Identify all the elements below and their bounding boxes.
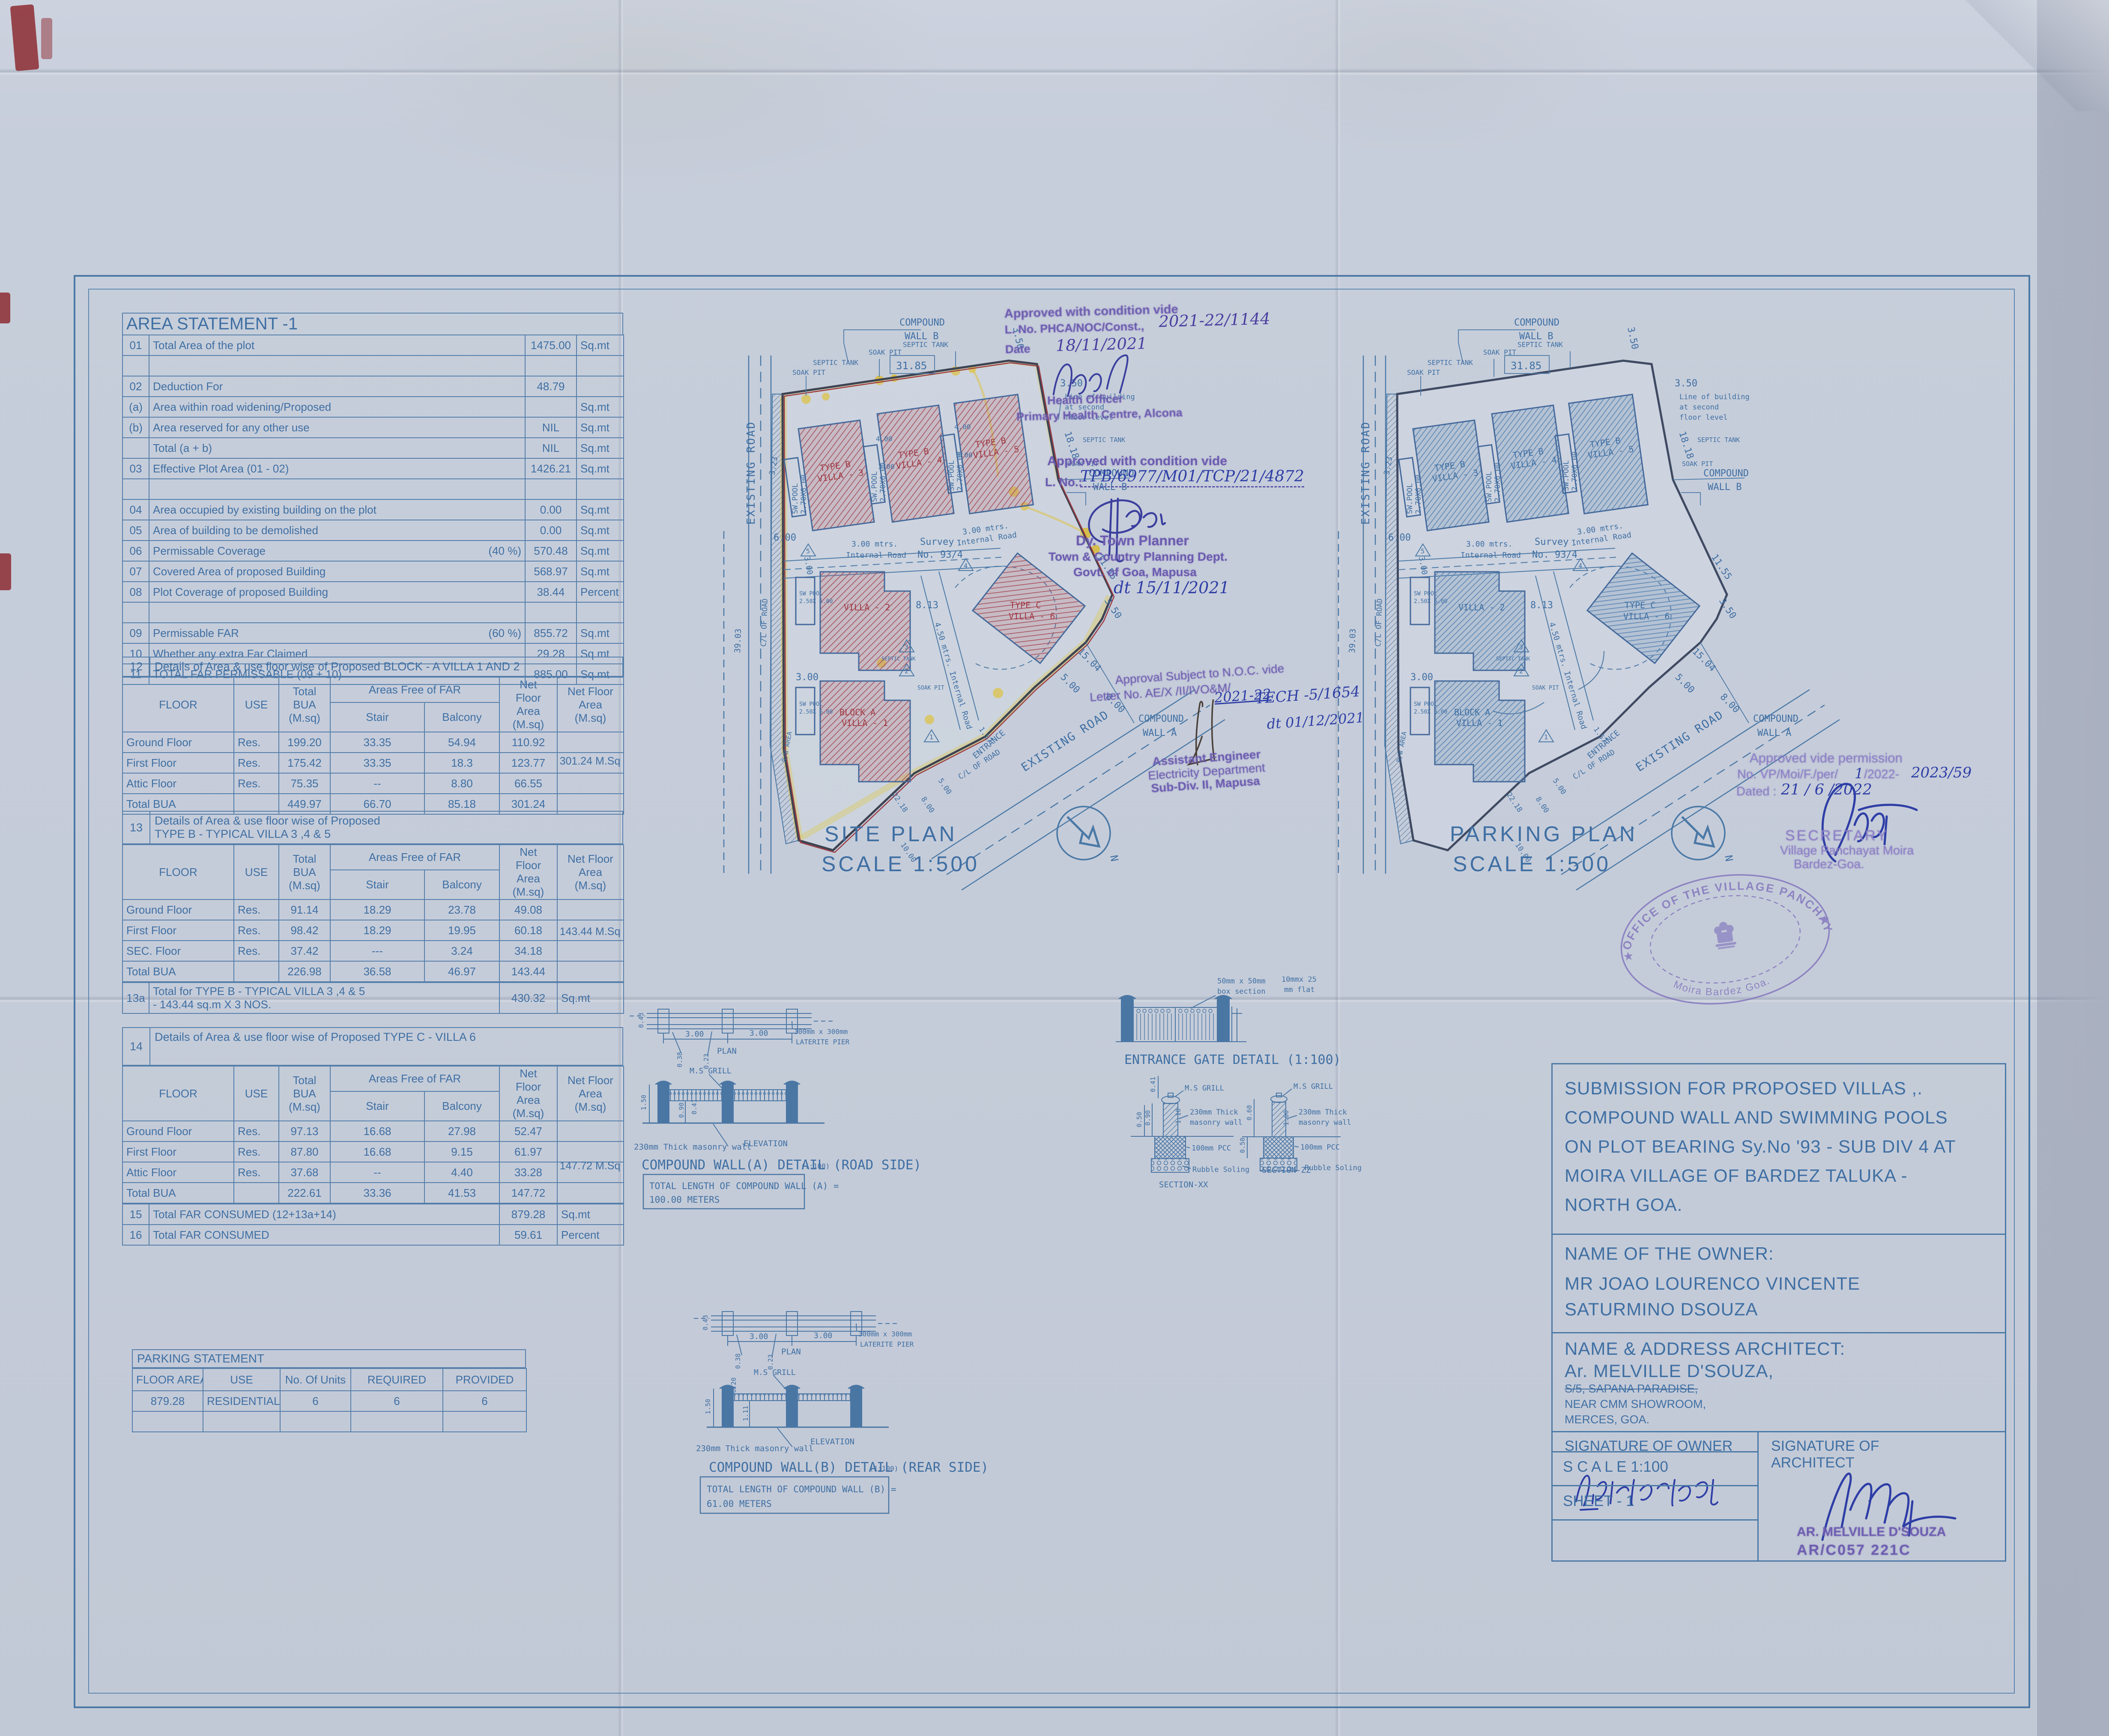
table-row: (a)Area within road widening/ProposedSq.… [122,397,624,417]
cell-balcony: 18.3 [424,753,499,773]
svg-text:2: 2 [1519,667,1523,675]
svg-text:ELEVATION: ELEVATION [744,1139,788,1148]
table-row: 04Area occupied by existing building on … [122,499,624,520]
block14-body: Ground FloorRes.97.1316.6827.9852.47Firs… [122,1121,624,1203]
col-stair: Stair [330,870,424,899]
cell-stair: 33.35 [330,732,424,753]
stamp-line: Primary Health Centre, Alcona [1016,406,1183,424]
svg-text:SOAK PIT: SOAK PIT [917,685,944,691]
col-nfa: Net Floor Area (M.sq) [557,677,624,732]
stamp-line: Approved with condition vide [1004,302,1178,321]
scanned-blueprint-page: AREA STATEMENT -1 01Total Area of the pl… [0,0,2109,1736]
svg-text:floor level: floor level [1679,413,1728,422]
health-officer-stamp: Approved with condition vide L. No. PHCA… [1004,295,1359,433]
cell-pct [461,561,525,582]
cell-floor: Ground Floor [122,1121,234,1141]
area-statement: AREA STATEMENT -1 01Total Area of the pl… [122,313,623,685]
cell-no [122,356,149,376]
cell-value: 879.28 [499,1204,557,1225]
cell-no: 05 [122,520,149,541]
svg-text:COMPOUND WALL(B) DETAIL (REAR: COMPOUND WALL(B) DETAIL (REAR SIDE) [709,1460,989,1475]
svg-text:SOAK PIT: SOAK PIT [792,368,825,376]
cell-balcony: 4.40 [424,1162,499,1183]
svg-text:5: 5 [1421,547,1425,555]
svg-text:0.23: 0.23 [767,1354,774,1370]
cell-unit [577,479,624,499]
svg-text:0.90: 0.90 [1144,1110,1152,1126]
svg-text:SW.POOL: SW.POOL [1485,471,1494,502]
divider [1553,1519,1757,1521]
cell-label: Plot Coverage of proposed Building [149,582,461,602]
col-bua: Total BUA (M.sq) [279,845,330,899]
cell-bua: 87.80 [279,1141,330,1162]
table-row [132,1411,526,1432]
block12-title: Details of Area & use floor wise of Prop… [150,657,524,676]
svg-text:1: 1 [929,733,933,741]
submission-line: SUBMISSION FOR PROPOSED VILLAS ,. [1565,1074,1956,1103]
table-row: 15Total FAR CONSUMED (12+13a+14)879.28Sq… [122,1204,624,1225]
cell-bua: 37.42 [279,941,330,961]
table-row: 09Permissable FAR(60 %)855.72Sq.mt [122,623,624,643]
table-row: Total BUA222.6133.3641.53147.72 [122,1183,624,1203]
cell-net: 49.08 [499,899,557,920]
parking-plan-scale: SCALE 1:500 [1453,852,1611,876]
cell-unit: Sq.mt [557,1204,624,1225]
block12-no: 12 [123,657,150,676]
cell-unit: Sq.mt [577,438,624,458]
cell-nfa [557,961,624,982]
cell-unit: Sq.mt [577,623,624,643]
table-row: 05Area of building to be demolished0.00S… [122,520,624,541]
table-row: Ground FloorRes.199.2033.3554.94110.92 [122,732,624,753]
cell-no: 03 [122,458,149,479]
stamp-line: Health Officer [1047,392,1123,408]
svg-text:31.85: 31.85 [896,360,927,372]
svg-text:5.00: 5.00 [1058,672,1082,696]
svg-text:M.S GRILL: M.S GRILL [1293,1082,1333,1091]
svg-text:2.70X6.00: 2.70X6.00 [1494,463,1502,502]
table-row: 01Total Area of the plot1475.00Sq.mt [122,335,624,356]
north-arrow-icon: N [1057,807,1120,862]
cell-value [525,356,577,376]
cell-floor: First Floor [122,920,234,941]
cell-bua: 37.68 [279,1162,330,1183]
cell-label: Deduction For [149,376,461,397]
cell-balcony: 23.78 [424,899,499,920]
table-row: Ground FloorRes.91.1418.2923.7849.08 [122,899,624,920]
entrance-gate-detail: 50mm x 50mm box section 10mmx 25 mm flat… [1116,977,1341,1067]
table-row: Total BUA226.9836.5846.97143.44 [122,961,624,982]
svg-text:22.18: 22.18 [1505,791,1524,814]
cell-nfa [557,1141,624,1162]
cell-net: 33.28 [499,1162,557,1183]
svg-text:2.70X6.00: 2.70X6.00 [1571,451,1579,491]
table-row: Attic FloorRes.75.35--8.8066.55 [122,773,624,794]
cell-nfa [557,773,624,794]
svg-text:LATERITE PIER: LATERITE PIER [860,1340,914,1348]
svg-text:3.50: 3.50 [1675,378,1697,389]
cell-unit [577,356,624,376]
parking-plan-title: PARKING PLAN [1450,822,1637,846]
divider [1553,1332,2005,1333]
cell-label: Effective Plot Area (01 - 02) [149,458,461,479]
compound-wall-a-detail: 3.00 3.00 0.43 0.38 0.23 PLAN 300mm x 30… [630,1009,921,1209]
svg-text:SW POOL: SW POOL [799,701,823,708]
svg-text:2.50X 6.00: 2.50X 6.00 [799,598,833,605]
round-office-stamp: OFFICE OF THE VILLAGE PANCHAYAT Moira Ba… [1615,869,1837,1010]
svg-text:SEPTIC TANK: SEPTIC TANK [903,341,948,349]
svg-text:0.43: 0.43 [637,1013,645,1028]
svg-text:1.50: 1.50 [704,1399,712,1414]
svg-text:TYPE C: TYPE C [1625,600,1655,610]
cell-value: 48.79 [525,376,577,397]
col-nfa: Net Floor Area (M.sq) [557,845,624,899]
col-required: REQUIRED [351,1368,443,1391]
stamp-line: Dy. Town Planner [1076,533,1189,549]
table-row: Attic FloorRes.37.68--4.4033.28 [122,1162,624,1183]
cell-unit: Sq.mt [577,335,624,356]
cell-pct [461,356,525,376]
cell-no [122,438,149,458]
row13a-no: 13a [122,983,149,1013]
col-balcony: Balcony [424,1091,499,1121]
svg-text:M.S GRILL: M.S GRILL [754,1368,796,1377]
stamp-line: Govt. of Goa, Mapusa [1073,565,1197,579]
cell-unit: Sq.mt [577,541,624,561]
svg-text:TOTAL LENGTH OF COMPOUND WALL: TOTAL LENGTH OF COMPOUND WALL (A) = [649,1181,839,1191]
electricity-dept-stamp: Approval Subject to N.O.C. vide Letter N… [1088,650,1430,802]
star-icon: ★ [1622,949,1634,963]
cell-balcony: 41.53 [424,1183,499,1203]
svg-text:mm flat: mm flat [1284,986,1315,994]
cell-use: Res. [234,941,279,961]
cell-pct [461,458,525,479]
svg-text:1.11: 1.11 [742,1406,750,1421]
cell-label: Total FAR CONSUMED (12+13a+14) [149,1204,499,1225]
cell-pct [461,520,525,541]
block13a-table: 13a Total for TYPE B - TYPICAL VILLA 3 ,… [122,982,624,1014]
col-free: Areas Free of FAR [330,1066,499,1091]
svg-text:SW.POOL: SW.POOL [870,471,879,502]
section-xx-detail: 0.41 0.50 0.90 1.10 M.S GRILL 230mm Thic… [1131,1076,1249,1189]
cell-value: NIL [525,438,577,458]
col-use: USE [234,1066,279,1121]
col-nfa: Net Floor Area (M.sq) [557,1066,624,1121]
cell-net: 143.44 [499,961,557,982]
cell-use: Res. [234,920,279,941]
cell-stair: -- [330,773,424,794]
svg-text:M.S GRILL: M.S GRILL [690,1067,732,1076]
table-row: SEC. FloorRes.37.42---3.2434.18 [122,941,624,961]
cell-label: Area reserved for any other use [149,417,461,438]
cell-units [280,1411,351,1432]
cell-label [149,356,461,376]
cell-value: 59.61 [499,1225,557,1245]
block12-header: 12 Details of Area & use floor wise of P… [122,657,623,677]
svg-text:100.00 METERS: 100.00 METERS [649,1195,720,1205]
table-row: Ground FloorRes.97.1316.6827.9852.47 [122,1121,624,1141]
svg-text:Survey: Survey [920,537,954,547]
cell-value [525,479,577,499]
svg-text:SW POOL: SW POOL [1414,591,1437,597]
cell-label [149,602,461,623]
svg-text:BLOCK A: BLOCK A [1454,707,1490,717]
svg-text:SW.POOL: SW.POOL [947,460,956,491]
col-units: No. Of Units [280,1368,351,1391]
cell-no: 02 [122,376,149,397]
area-statement-table: 01Total Area of the plot1475.00Sq.mt02De… [122,335,624,685]
svg-text:LATERITE PIER: LATERITE PIER [796,1038,850,1046]
svg-text:2: 2 [905,667,908,675]
red-tape-mark [41,18,52,59]
cell-label [149,479,461,499]
compound-wall-b-detail: 3.00 3.00 0.43 0.38 0.23 PLAN 300mm x 30… [694,1312,989,1513]
cell-no: 16 [122,1225,149,1245]
cell-no: 06 [122,541,149,561]
cell-use [203,1411,280,1432]
far-consumed-body: 15Total FAR CONSUMED (12+13a+14)879.28Sq… [122,1204,624,1245]
svg-text:10mmx 25: 10mmx 25 [1282,977,1317,984]
cell-label: Total (a + b) [149,438,461,458]
cell-balcony: 27.98 [424,1121,499,1141]
cell-value: 570.48 [525,541,577,561]
cell-no [122,479,149,499]
svg-text:VILLA - 6: VILLA - 6 [1009,611,1055,621]
col-bua: Total BUA (M.sq) [279,677,330,732]
svg-text:SEPTIC TANK: SEPTIC TANK [1697,436,1740,444]
svg-text:N: N [1108,854,1120,862]
svg-text:Line of building: Line of building [1679,393,1750,401]
cell-stair: --- [330,941,424,961]
svg-text:No. 93/4: No. 93/4 [1532,550,1577,560]
architect-address-line: S/5, SAPANA PARADISE, [1565,1382,1698,1395]
stamp-line: Village Panchayat Moira [1780,844,1914,858]
cell-prov: 6 [443,1391,526,1411]
village-panchayat-stamp: Approved vide permission No. VP/Moi/F./p… [1726,749,2009,877]
cell-value [525,602,577,623]
svg-text:5.00: 5.00 [1551,777,1568,796]
red-binder-mark [0,293,10,323]
svg-text:0.38: 0.38 [676,1052,684,1067]
cell-units: 6 [280,1391,351,1411]
cell-area: 879.28 [132,1391,203,1411]
cell-no [122,602,149,623]
svg-text:SW.POOL: SW.POOL [1406,483,1414,514]
col-balcony: Balcony [424,702,499,732]
parking-statement-title: PARKING STATEMENT [132,1349,526,1368]
table-row: 03Effective Plot Area (01 - 02)1426.21Sq… [122,458,624,479]
svg-text:masonry wall: masonry wall [1299,1118,1351,1127]
svg-text:2.50X 6.00: 2.50X 6.00 [799,709,833,715]
svg-text:SW.POOL: SW.POOL [1562,460,1571,491]
block14-title: Details of Area & use floor wise of Prop… [150,1028,480,1046]
cell-unit: Percent [557,1225,624,1245]
svg-text:EXISTING ROAD: EXISTING ROAD [745,421,758,525]
cell-use: Res. [234,1162,279,1183]
svg-text:8.00: 8.00 [919,795,936,815]
col-bua: Total BUA (M.sq) [279,1066,330,1121]
svg-text:0.41: 0.41 [1149,1077,1157,1092]
svg-text:2.70X6.00: 2.70X6.00 [800,475,808,514]
stamp-line: Dated : [1736,785,1777,799]
architect-stamp-number: AR/C057 221C [1797,1542,1911,1559]
table-row: 07Covered Area of proposed Building568.9… [122,561,624,582]
cell-stair: 18.29 [330,920,424,941]
cell-floor: First Floor [122,753,234,773]
svg-text:0.60: 0.60 [1246,1105,1253,1120]
table-row: (b)Area reserved for any other useNILSq.… [122,417,624,438]
submission-line: ON PLOT BEARING Sy.No '93 - SUB DIV 4 AT [1565,1132,1956,1161]
table-row: First FloorRes.87.8016.689.1561.97 [122,1141,624,1162]
cell-label: Area within road widening/Proposed [149,397,461,417]
svg-text:4.00: 4.00 [876,435,893,443]
cell-unit: Sq.mt [577,499,624,520]
cell-stair: -- [330,1162,424,1183]
svg-text:WALL A: WALL A [1757,728,1791,738]
svg-text:masonry wall: masonry wall [1190,1118,1243,1127]
svg-text:SOAK PIT: SOAK PIT [1407,368,1440,376]
block14: 14 Details of Area & use floor wise of P… [122,1027,623,1246]
cell-unit: Percent [577,582,624,602]
cell-bua: 75.35 [279,773,330,794]
ashoka-emblem [1713,920,1737,950]
cell-stair: 18.29 [330,899,424,920]
owner-label: NAME OF THE OWNER: [1565,1243,1774,1264]
svg-text:15.04: 15.04 [1075,646,1103,674]
col-stair: Stair [330,1091,424,1121]
cell-no: 04 [122,499,149,520]
stamp-line: Approved with condition vide [1047,454,1227,469]
table-row: Total (a + b)NILSq.mt [122,438,624,458]
corner-fold [1962,0,2109,111]
svg-text:SECTION-ZZ: SECTION-ZZ [1262,1165,1311,1175]
svg-text:Rubble Soling: Rubble Soling [1192,1165,1249,1174]
cell-net: 123.77 [499,753,557,773]
svg-text:1: 1 [1544,733,1548,741]
cell-floor: SEC. Floor [122,941,234,961]
sheet-number: SHEET - 1 [1563,1493,1634,1510]
cell-bua: 91.14 [279,899,330,920]
row13a-unit: Sq.mt [557,983,624,1013]
table-row [122,479,624,499]
title-block: SUBMISSION FOR PROPOSED VILLAS ,. COMPOU… [1551,1063,2006,1562]
svg-text:6.00: 6.00 [774,532,796,543]
cell-stair: 33.35 [330,753,424,773]
block13: 13 Details of Area & use floor wise of P… [122,811,623,1014]
svg-text:31.85: 31.85 [1511,360,1541,372]
submission-line: COMPOUND WALL AND SWIMMING POOLS [1565,1103,1956,1132]
cell-balcony: 19.95 [424,920,499,941]
stamp-line: Town & Country Planning Dept. [1049,550,1228,564]
col-floor-area: FLOOR AREA [132,1368,203,1391]
cell-pct [461,582,525,602]
row13a-label: Total for TYPE B - TYPICAL VILLA 3 ,4 & … [149,983,499,1013]
svg-text:C/L OF ROAD: C/L OF ROAD [759,598,770,647]
cell-pct [461,397,525,417]
stamp-line: L. No.: [1045,475,1082,489]
svg-text:SEPTIC TANK: SEPTIC TANK [1083,436,1125,444]
svg-text:61.00 METERS: 61.00 METERS [707,1499,772,1509]
cell-pct [461,376,525,397]
cell-label: Area of building to be demolished [149,520,461,541]
svg-text:230mm Thick masonry wall: 230mm Thick masonry wall [696,1444,814,1453]
cell-bua: 226.98 [279,961,330,982]
cell-floor: Total BUA [122,1183,234,1203]
cell-unit: Sq.mt [577,397,624,417]
cell-net: 61.97 [499,1141,557,1162]
cell-stair: 33.36 [330,1183,424,1203]
parking-statement: PARKING STATEMENT FLOOR AREA USE No. Of … [132,1349,526,1432]
cell-req [351,1411,443,1432]
cell-stair: 16.68 [330,1121,424,1141]
table-row: 16Total FAR CONSUMED59.61Percent [122,1225,624,1245]
svg-text:ELEVATION: ELEVATION [810,1437,854,1446]
cell-no: 08 [122,582,149,602]
cell-no: 15 [122,1204,149,1225]
svg-text:3: 3 [905,643,908,651]
cell-label: Covered Area of proposed Building [149,561,461,582]
svg-text:39.03: 39.03 [733,628,743,653]
svg-text:COMPOUND: COMPOUND [1753,714,1798,724]
town-planner-stamp: Approved with condition vide L. No.: TPB… [1045,453,1379,607]
svg-text:3.00: 3.00 [814,1331,832,1340]
cell-pct [461,335,525,356]
cell-unit: Sq.mt [577,561,624,582]
architect-address-line: MERCES, GOA. [1565,1413,1649,1426]
cell-pct: (60 %) [461,623,525,643]
svg-text:SOAK PIT: SOAK PIT [1682,460,1713,468]
cell-bua: 97.13 [279,1121,330,1141]
cell-value: 0.00 [525,499,577,520]
block12-body: Ground FloorRes.199.2033.3554.94110.92Fi… [122,732,624,814]
block14-header: 14 Details of Area & use floor wise of P… [122,1027,623,1066]
col-net: Net Floor Area (M.sq) [499,677,557,732]
cell-bua: 175.42 [279,753,330,773]
cell-nfa [557,899,624,920]
cell-no: 07 [122,561,149,582]
block14-table: FLOOR USE Total BUA (M.sq) Areas Free of… [122,1066,624,1204]
col-floor: FLOOR [122,845,234,899]
svg-text:(1:100): (1:100) [869,1464,898,1473]
cell-net: 110.92 [499,732,557,753]
svg-text:1.00: 1.00 [1282,1110,1290,1126]
cell-value: 1475.00 [525,335,577,356]
submission-line: NORTH GOA. [1565,1190,1956,1219]
table-row [122,356,624,376]
cell-nfa [557,941,624,961]
cell-label: Area occupied by existing building on th… [149,499,461,520]
svg-text:3.00: 3.00 [685,1030,704,1039]
svg-text:VILLA - 2: VILLA - 2 [1458,602,1505,613]
cell-unit [577,602,624,623]
paper-edge [2037,0,2109,1736]
svg-text:0.43: 0.43 [702,1315,709,1330]
svg-text:Survey: Survey [1535,537,1568,547]
svg-text:230mm Thick: 230mm Thick [1190,1108,1238,1117]
cell-bua: 222.61 [279,1183,330,1203]
cell-label: Total Area of the plot [149,335,461,356]
cell-use [234,961,279,982]
owner-name-line: MR JOAO LOURENCO VINCENTE [1565,1273,1860,1294]
divider [1553,1485,1757,1486]
svg-text:0.50: 0.50 [1239,1138,1246,1153]
cell-req: 6 [351,1391,443,1411]
stamp-handwriting: dt 15/11/2021 [1114,578,1230,597]
svg-text:VILLA - 1: VILLA - 1 [1456,718,1503,728]
owner-name-line: SATURMINO DSOUZA [1565,1299,1758,1320]
parking-statement-table: FLOOR AREA USE No. Of Units REQUIRED PRO… [132,1368,527,1432]
svg-text:SEPTIC TANK: SEPTIC TANK [1428,359,1473,367]
